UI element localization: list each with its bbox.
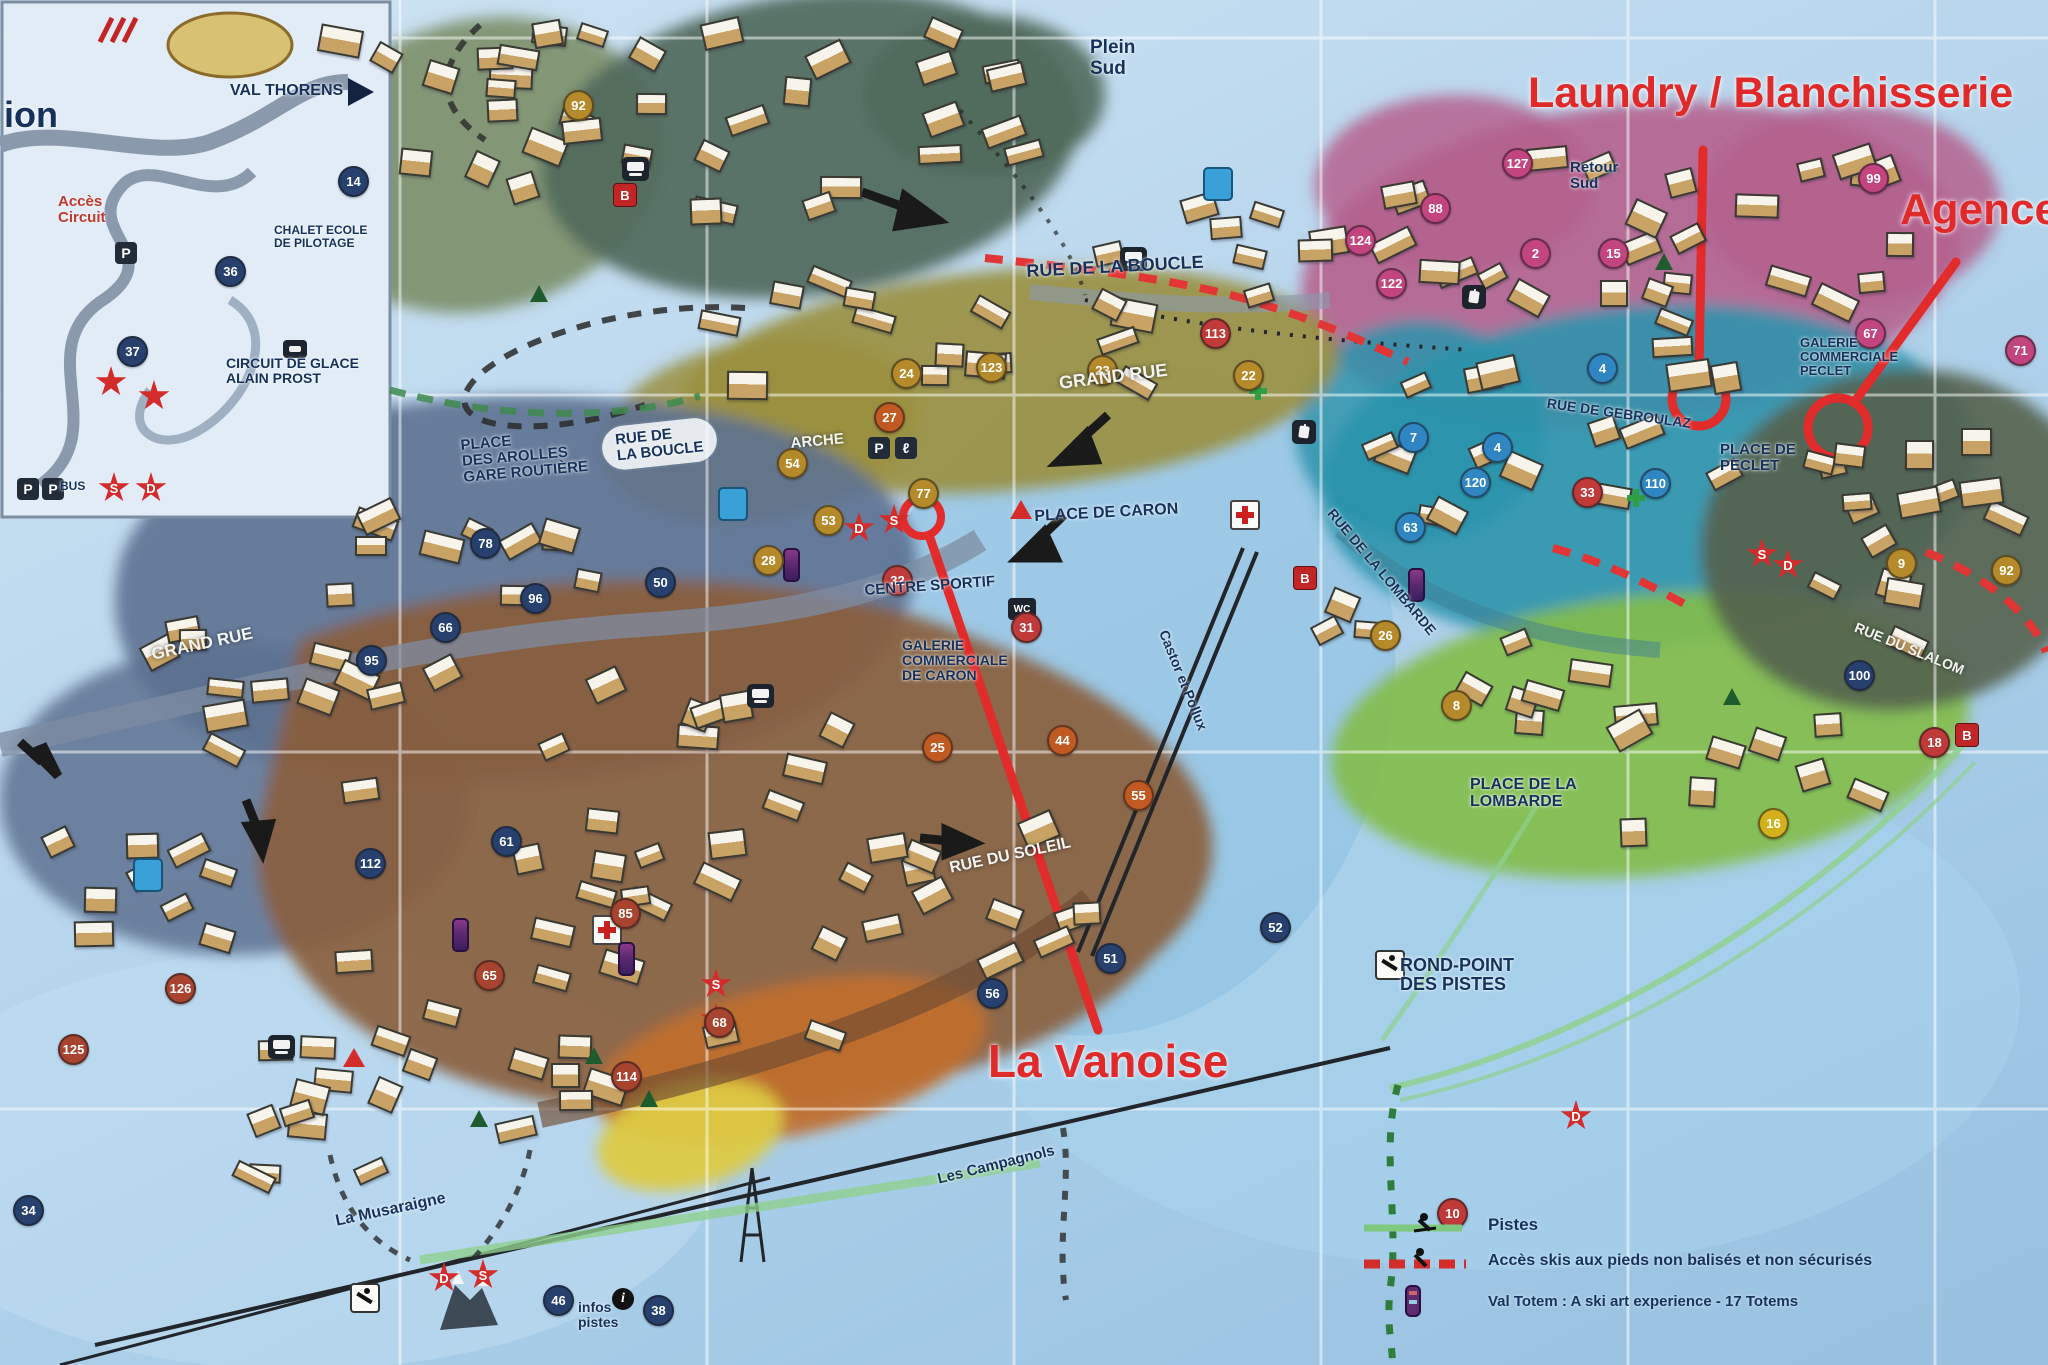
building-number-marker: 16: [1758, 808, 1789, 839]
building-number-marker: 55: [1123, 780, 1154, 811]
building: [782, 75, 812, 106]
building: [74, 920, 115, 947]
tree-icon: [1655, 253, 1673, 270]
building-number-marker: 95: [356, 645, 387, 676]
laundry-pointer-line: [1699, 150, 1703, 371]
building: [560, 117, 603, 145]
building-number-marker: 54: [777, 448, 808, 479]
building: [355, 536, 387, 556]
building: [559, 1089, 593, 1110]
building: [635, 93, 666, 115]
building: [1072, 901, 1102, 926]
building: [1620, 818, 1648, 848]
tree-icon: [585, 1047, 603, 1064]
building: [918, 144, 963, 165]
building-number-marker: 15: [1598, 238, 1629, 269]
building: [1842, 492, 1873, 512]
pdark-icon: P: [115, 242, 137, 264]
building-number-marker: 52: [1260, 912, 1291, 943]
building: [84, 887, 118, 914]
building-number-marker: 113: [1200, 318, 1231, 349]
building: [690, 197, 723, 225]
building-number-marker: 38: [643, 1295, 674, 1326]
building: [334, 949, 374, 974]
building-number-marker: 36: [215, 256, 246, 287]
map-label: VAL THORENS: [230, 82, 343, 99]
building-number-marker: 112: [355, 848, 386, 879]
building-number-marker: 51: [1095, 943, 1126, 974]
building: [250, 677, 290, 703]
building-number-marker: 26: [1370, 620, 1401, 651]
bus-icon: [268, 1035, 295, 1059]
agence-annotation-label: Agence: [1900, 188, 2048, 232]
b-marker-badge: B: [1293, 566, 1317, 590]
building: [551, 1063, 580, 1088]
map-label: ion: [4, 96, 58, 135]
building-number-marker: 92: [1991, 555, 2022, 586]
building: [340, 776, 380, 804]
building: [707, 828, 747, 861]
totem-icon: [452, 918, 469, 952]
building-number-marker: 22: [1233, 360, 1264, 391]
cross-icon: [1230, 500, 1260, 530]
building-number-marker: 71: [2005, 335, 2036, 366]
gond-icon: [1292, 420, 1316, 444]
building-number-marker: 44: [1047, 725, 1078, 756]
building-number-marker: 25: [922, 732, 953, 763]
pdark-icon: P: [868, 437, 890, 459]
lift-icon: ℓ: [895, 437, 917, 459]
map-label: Retour Sud: [1570, 160, 1618, 192]
map-label: Accès Circuit: [58, 194, 106, 226]
resort-map: SDDSSDSDDSDBBBPPPPℓWCi 92127998812412221…: [0, 0, 2048, 1365]
building: [585, 807, 621, 835]
building: [590, 849, 627, 883]
building: [1418, 258, 1461, 285]
building-number-marker: 96: [520, 583, 551, 614]
building-number-marker: 61: [491, 826, 522, 857]
map-label: BUS: [60, 480, 85, 493]
building: [934, 342, 964, 367]
building-number-marker: 56: [977, 978, 1008, 1009]
building: [1905, 440, 1935, 470]
building-number-marker: 63: [1395, 512, 1426, 543]
legend-access-row: Accès skis aux pieds non balisés et non …: [1362, 1247, 1962, 1275]
legend-totem-label: Val Totem : A ski art experience - 17 To…: [1488, 1293, 1798, 1310]
building: [1710, 360, 1743, 394]
totem-icon: [1362, 1284, 1472, 1318]
legend-access-label: Accès skis aux pieds non balisés et non …: [1488, 1252, 1872, 1270]
building: [126, 833, 160, 860]
building: [1735, 193, 1780, 219]
building-number-marker: 66: [430, 612, 461, 643]
map-label: PLACE DE PECLET: [1720, 442, 1796, 474]
building-number-marker: 34: [13, 1195, 44, 1226]
building-number-marker: 24: [891, 358, 922, 389]
vanoise-annotation-label: La Vanoise: [988, 1038, 1228, 1084]
legend-totem-row: Val Totem : A ski art experience - 17 To…: [1362, 1284, 1962, 1318]
tree-icon: [470, 1110, 488, 1127]
building: [727, 371, 769, 400]
legend-pistes-row: Pistes: [1362, 1212, 1962, 1238]
skier-icon: [350, 1283, 380, 1313]
building: [1813, 712, 1842, 738]
building-number-marker: 27: [874, 402, 905, 433]
bus-icon: [747, 684, 774, 708]
pblue-icon: [1203, 167, 1233, 201]
building: [1209, 216, 1243, 240]
building: [1688, 776, 1717, 808]
pblue-icon: [718, 487, 748, 521]
building-number-marker: 28: [753, 545, 784, 576]
map-label: PLACE DE LA LOMBARDE: [1470, 776, 1577, 811]
building-number-marker: 18: [1919, 727, 1950, 758]
pblue-icon: [133, 858, 163, 892]
building: [485, 78, 517, 99]
building-number-marker: 122: [1376, 268, 1407, 299]
map-label: GALERIE COMMERCIALE DE CARON: [902, 638, 1008, 683]
building: [326, 582, 355, 607]
legend-pistes-label: Pistes: [1488, 1215, 1538, 1235]
building-number-marker: 4: [1482, 432, 1513, 463]
map-label: infos pistes: [578, 1300, 618, 1330]
map-legend: Pistes Accès skis aux pieds non balisés …: [1362, 1212, 1962, 1327]
building: [398, 148, 433, 178]
tree-icon: [640, 1090, 658, 1107]
building: [1298, 239, 1334, 263]
building: [299, 1035, 336, 1060]
building-number-marker: 127: [1502, 148, 1533, 179]
building-number-marker: 53: [813, 505, 844, 536]
building: [531, 19, 564, 49]
building: [1857, 270, 1886, 293]
building: [1600, 280, 1628, 307]
building-number-marker: 33: [1572, 477, 1603, 508]
map-label: GALERIE COMMERCIALE PECLET: [1800, 336, 1898, 378]
building-number-marker: 114: [611, 1061, 642, 1092]
piste-line-icon: [1362, 1212, 1472, 1238]
b-marker-badge: B: [613, 183, 637, 207]
building-number-marker: 50: [645, 567, 676, 598]
building: [1833, 442, 1867, 469]
ski-access-dash-icon: [1362, 1247, 1472, 1275]
tree-icon: [1723, 688, 1741, 705]
building-number-marker: 2: [1520, 238, 1551, 269]
tree-icon: [530, 285, 548, 302]
building-number-marker: 85: [610, 898, 641, 929]
map-label: ROND-POINT DES PISTES: [1400, 956, 1514, 995]
bus-icon: [622, 157, 649, 181]
map-label: CIRCUIT DE GLACE ALAIN PROST: [226, 356, 359, 386]
building-number-marker: 88: [1420, 193, 1451, 224]
building-number-marker: 37: [117, 336, 148, 367]
building-number-marker: 14: [338, 166, 369, 197]
building: [1886, 232, 1915, 257]
building-number-marker: 46: [543, 1285, 574, 1316]
building-number-marker: 77: [908, 478, 939, 509]
building-number-marker: 68: [704, 1007, 735, 1038]
building: [1959, 476, 2005, 508]
inset-access-map: [0, 2, 390, 517]
map-label: CHALET ECOLE DE PILOTAGE: [274, 224, 367, 250]
building-number-marker: 99: [1858, 163, 1889, 194]
building: [206, 677, 245, 699]
building-number-marker: 7: [1398, 422, 1429, 453]
building-number-marker: 110: [1640, 468, 1671, 499]
building-number-marker: 8: [1441, 690, 1472, 721]
building-number-marker: 9: [1886, 548, 1917, 579]
building: [1651, 336, 1693, 359]
map-label: Plein Sud: [1090, 38, 1135, 79]
building-number-marker: 100: [1844, 660, 1875, 691]
totem-icon: [618, 942, 635, 976]
laundry-annotation-label: Laundry / Blanchisserie: [1528, 72, 2013, 115]
tri-icon: [343, 1048, 365, 1067]
building-number-marker: 126: [165, 973, 196, 1004]
pdark-icon: P: [17, 478, 39, 500]
building-number-marker: 92: [563, 90, 594, 121]
building-number-marker: 125: [58, 1034, 89, 1065]
building: [1961, 428, 1992, 456]
building-number-marker: 78: [470, 528, 501, 559]
tri-icon: [1010, 500, 1032, 519]
building: [921, 365, 949, 387]
building-number-marker: 123: [976, 352, 1007, 383]
b-marker-badge: B: [1955, 723, 1979, 747]
gond-icon: [1462, 285, 1486, 309]
building: [487, 98, 519, 123]
building-number-marker: 31: [1011, 612, 1042, 643]
building-number-marker: 120: [1460, 467, 1491, 498]
building-number-marker: 124: [1345, 225, 1376, 256]
building-number-marker: 65: [474, 960, 505, 991]
totem-icon: [783, 548, 800, 582]
building-number-marker: 4: [1587, 353, 1618, 384]
